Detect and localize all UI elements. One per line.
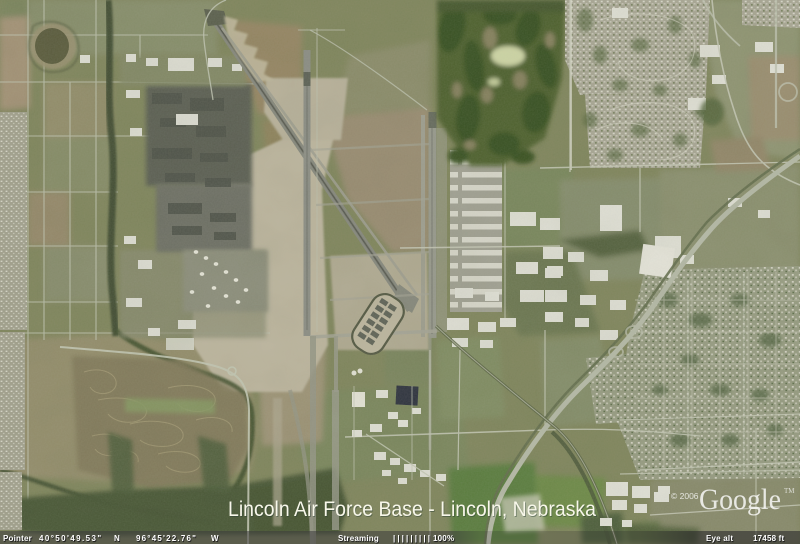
svg-text:TM: TM xyxy=(784,487,795,495)
svg-text:© 2006: © 2006 xyxy=(671,491,699,501)
svg-text:Lincoln Air Force Base - Linco: Lincoln Air Force Base - Lincoln, Nebras… xyxy=(228,497,596,521)
svg-text:Google: Google xyxy=(699,483,781,516)
